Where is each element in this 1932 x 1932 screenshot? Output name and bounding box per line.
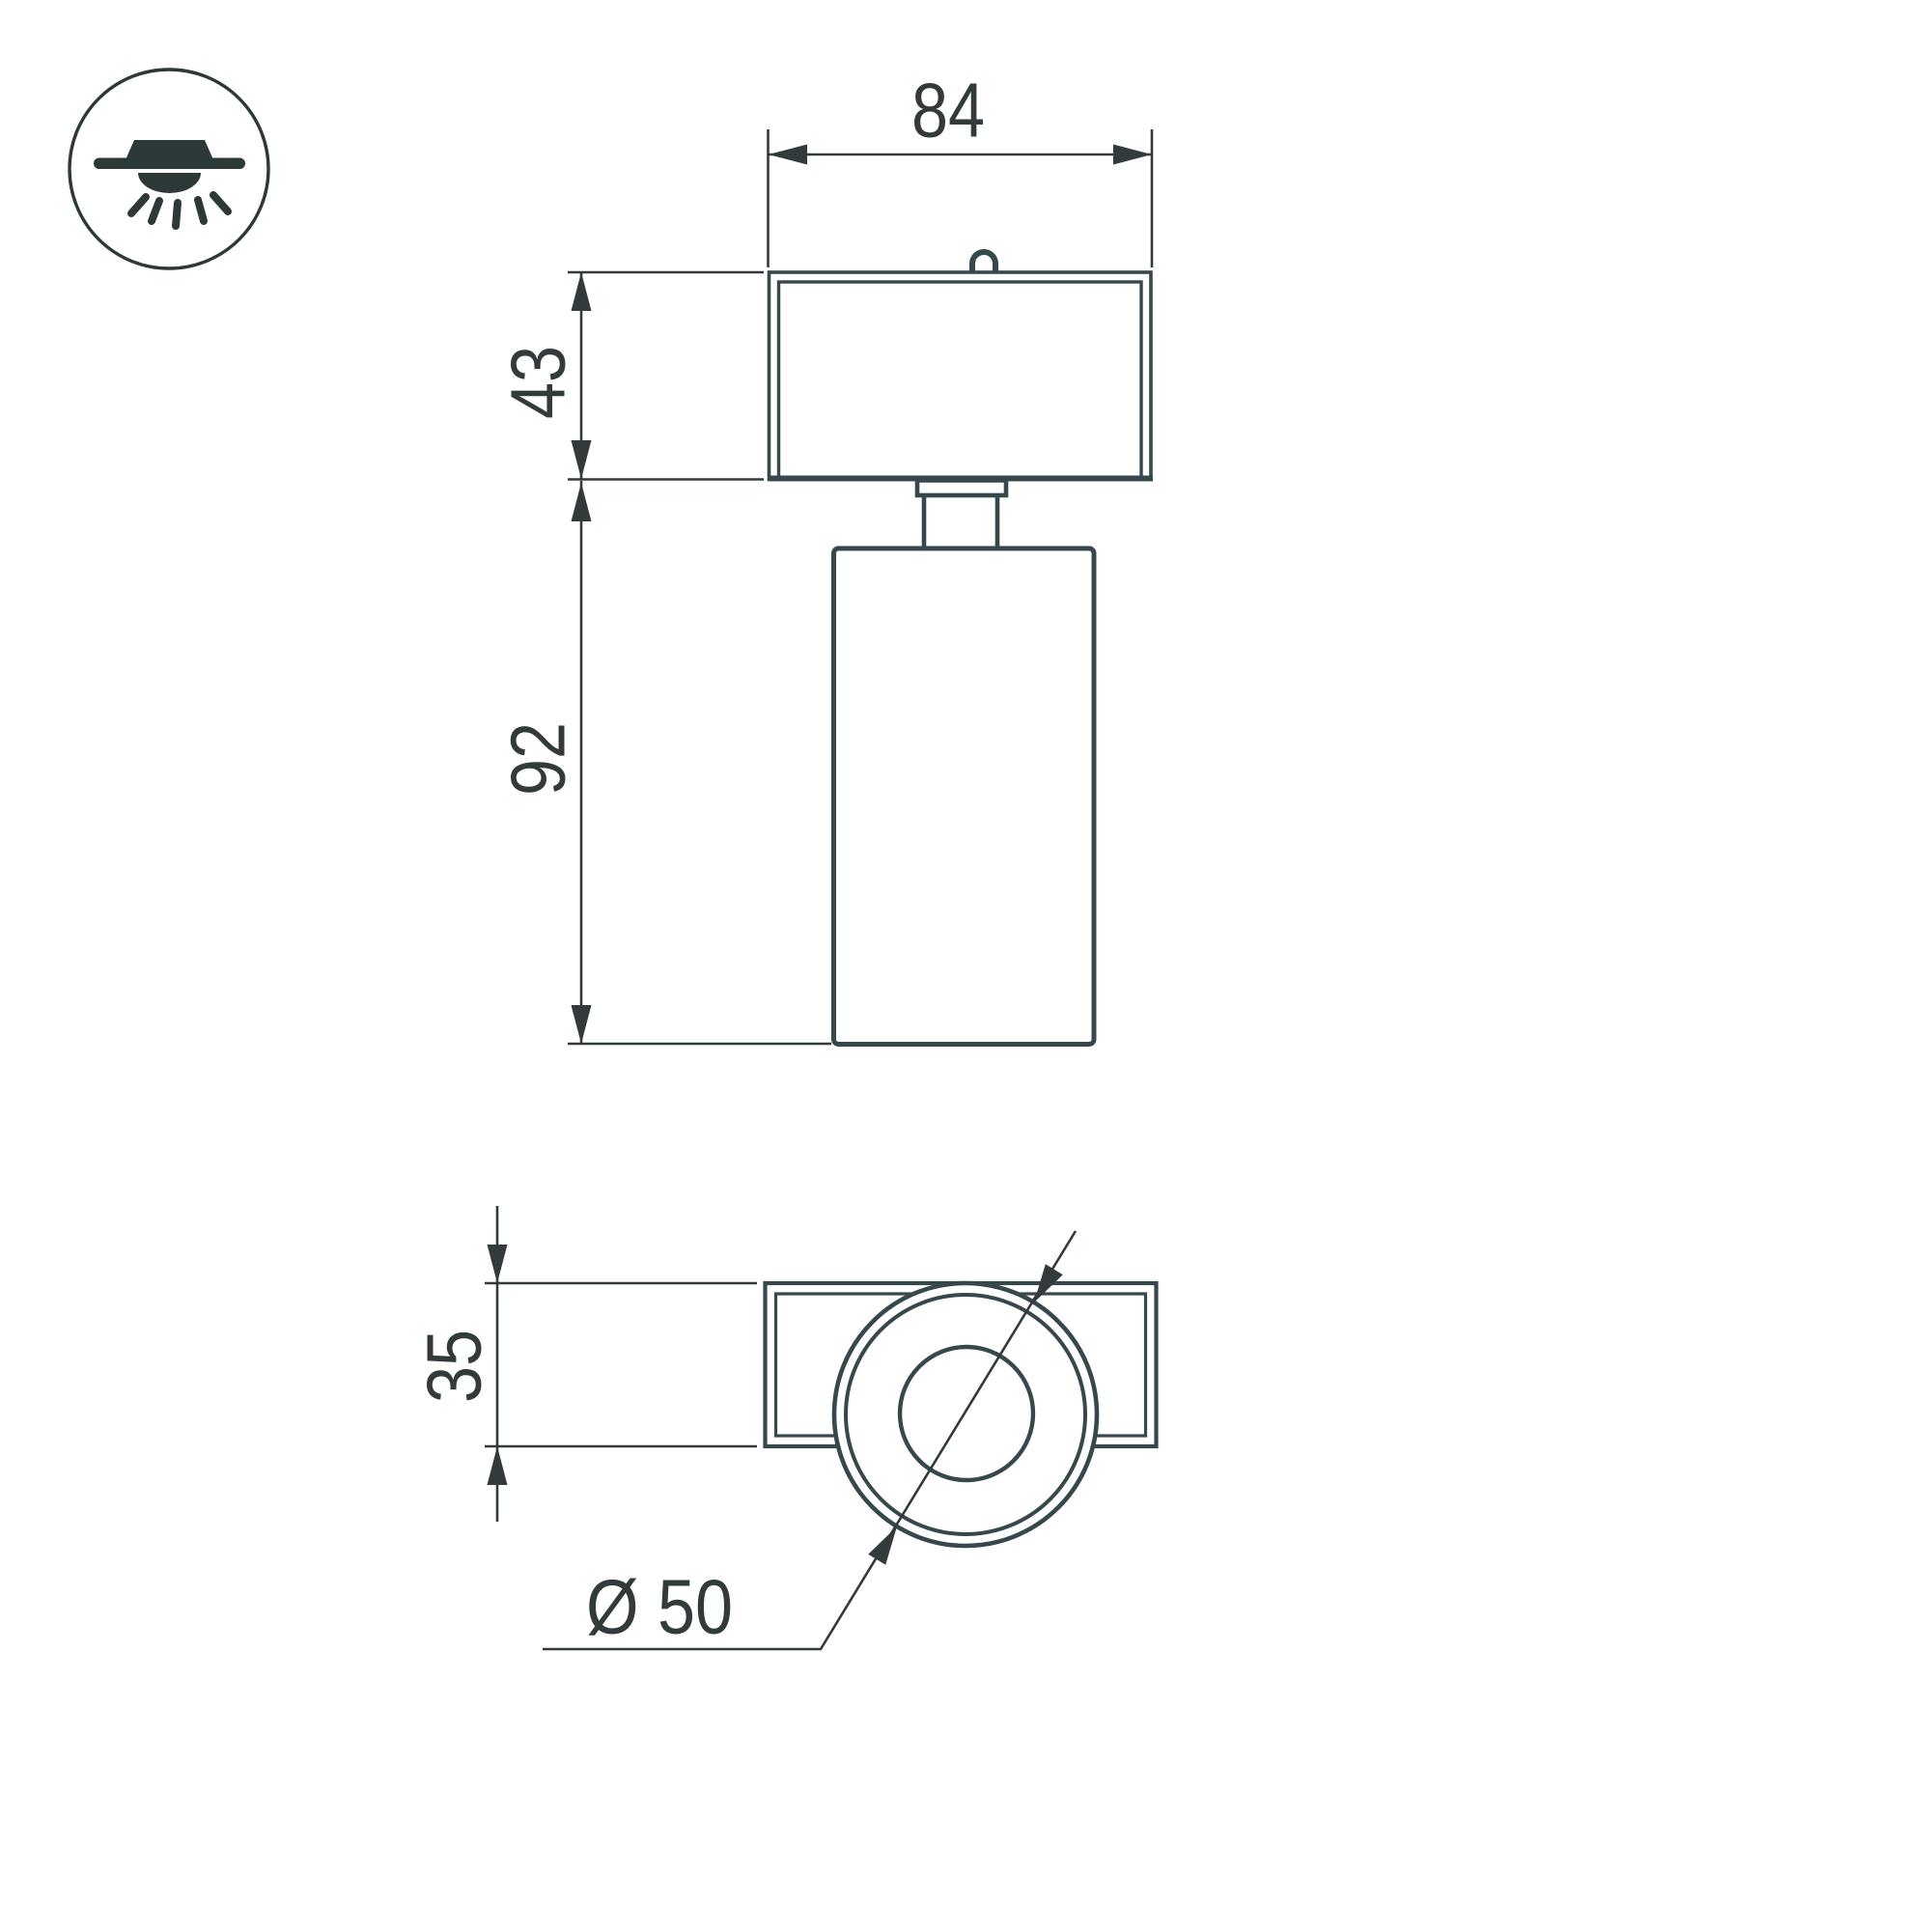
neck-collar: [917, 481, 1006, 496]
arrow-right-icon: [1113, 145, 1152, 165]
dimension-label-width: 84: [911, 68, 985, 154]
arrow-up-icon: [488, 1446, 508, 1485]
arrow-down-icon: [488, 1245, 508, 1283]
body-height-dimension: 92: [495, 481, 832, 1044]
dimension-label-body-height: 92: [495, 722, 581, 796]
head-box-outer: [770, 272, 1152, 479]
arrow-lower-icon: [868, 1526, 897, 1565]
dimension-label-diameter: Ø 50: [586, 1564, 733, 1650]
front-view: [768, 252, 1153, 1045]
arrow-down-icon: [572, 440, 592, 479]
arrow-left-icon: [769, 145, 807, 165]
lamp-dome-shape: [138, 173, 201, 193]
body-outer-circle: [834, 1283, 1097, 1546]
head-height-dimension: 43: [495, 272, 765, 480]
arrow-up-icon: [572, 272, 592, 311]
light-rays-icon: [131, 195, 228, 226]
technical-drawing: 84 43 92 35 Ø 50: [0, 0, 1932, 1932]
ceiling-line-shape: [94, 158, 245, 170]
lamp-body-shape: [126, 140, 213, 160]
dimension-label-bracket-depth: 35: [411, 1330, 497, 1403]
drawing-canvas: 84 43 92 35 Ø 50: [0, 0, 1932, 1932]
body-cylinder: [834, 548, 1095, 1045]
surface-mount-ceiling-light-icon: [70, 70, 268, 268]
arrow-down-icon: [572, 1005, 592, 1044]
dimension-label-head-height: 43: [495, 346, 581, 419]
bottom-view: [766, 1283, 1157, 1546]
bracket-depth-dimension: 35: [411, 1206, 758, 1522]
arrow-up-icon: [572, 483, 592, 521]
width-dimension: 84: [769, 68, 1153, 268]
